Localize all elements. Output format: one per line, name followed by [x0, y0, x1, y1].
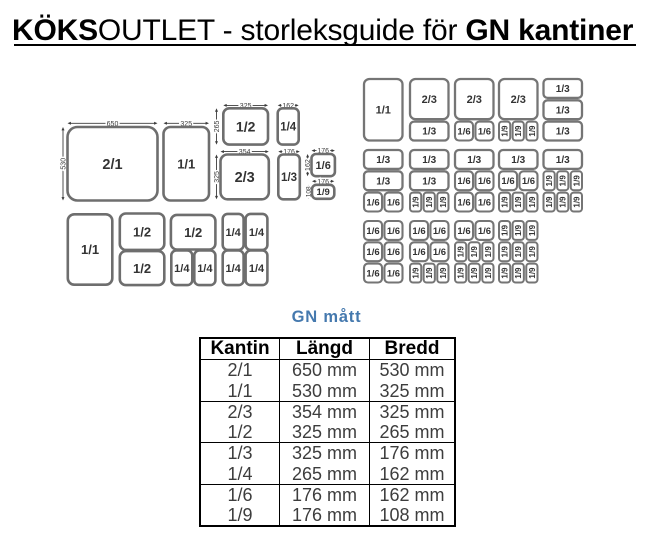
- svg-text:1/6: 1/6: [366, 268, 379, 279]
- svg-text:1/3: 1/3: [376, 176, 390, 187]
- svg-text:1/6: 1/6: [366, 226, 379, 237]
- svg-text:1/3: 1/3: [422, 176, 436, 187]
- svg-text:1/4: 1/4: [226, 227, 242, 239]
- svg-text:1/9: 1/9: [456, 267, 465, 279]
- svg-text:1/9: 1/9: [514, 246, 523, 258]
- svg-text:1/6: 1/6: [433, 226, 446, 237]
- svg-text:1/6: 1/6: [457, 197, 470, 208]
- svg-text:1/9: 1/9: [514, 224, 523, 236]
- svg-text:1/3: 1/3: [281, 172, 297, 184]
- svg-text:1/6: 1/6: [387, 268, 400, 279]
- svg-text:1/4: 1/4: [197, 263, 213, 275]
- svg-text:1/2: 1/2: [133, 224, 151, 239]
- svg-text:1/6: 1/6: [501, 176, 514, 187]
- svg-text:1/9: 1/9: [514, 125, 523, 137]
- svg-text:1/9: 1/9: [572, 175, 581, 187]
- svg-text:2/1: 2/1: [102, 157, 122, 173]
- svg-text:1/3: 1/3: [556, 105, 570, 116]
- svg-text:1/6: 1/6: [387, 247, 400, 258]
- svg-text:1/9: 1/9: [500, 224, 509, 236]
- svg-text:1/9: 1/9: [317, 187, 330, 198]
- svg-text:1/1: 1/1: [376, 105, 391, 117]
- svg-text:1/9: 1/9: [500, 125, 509, 137]
- svg-text:1/9: 1/9: [528, 196, 537, 208]
- svg-text:1/9: 1/9: [411, 196, 420, 208]
- svg-text:2/3: 2/3: [235, 170, 255, 186]
- svg-text:1/4: 1/4: [174, 263, 190, 275]
- svg-text:1/9: 1/9: [439, 196, 448, 208]
- svg-text:1/9: 1/9: [500, 196, 509, 208]
- svg-text:1/6: 1/6: [316, 160, 331, 172]
- svg-text:1/9: 1/9: [528, 125, 537, 137]
- svg-text:1/3: 1/3: [556, 84, 570, 95]
- svg-text:2/3: 2/3: [467, 94, 482, 106]
- svg-text:1/9: 1/9: [559, 196, 568, 208]
- svg-text:1/9: 1/9: [484, 246, 493, 258]
- svg-text:1/9: 1/9: [500, 267, 509, 279]
- svg-text:1/4: 1/4: [226, 263, 242, 275]
- svg-text:1/9: 1/9: [545, 196, 554, 208]
- svg-text:1/6: 1/6: [366, 197, 379, 208]
- svg-text:1/6: 1/6: [387, 226, 400, 237]
- svg-text:1/9: 1/9: [514, 196, 523, 208]
- svg-text:1/9: 1/9: [528, 224, 537, 236]
- svg-text:1/3: 1/3: [376, 155, 390, 166]
- svg-text:1/9: 1/9: [425, 196, 434, 208]
- svg-text:1/1: 1/1: [81, 242, 99, 257]
- svg-text:1/3: 1/3: [467, 155, 481, 166]
- svg-text:1/2: 1/2: [236, 118, 256, 134]
- svg-text:1/9: 1/9: [559, 175, 568, 187]
- svg-text:1/9: 1/9: [439, 267, 448, 279]
- svg-text:1/6: 1/6: [457, 226, 470, 237]
- svg-text:2/3: 2/3: [422, 94, 437, 106]
- svg-text:1/6: 1/6: [412, 226, 425, 237]
- svg-text:1/6: 1/6: [387, 197, 400, 208]
- svg-text:1/3: 1/3: [422, 127, 436, 138]
- svg-text:1/9: 1/9: [470, 246, 479, 258]
- svg-text:1/6: 1/6: [457, 126, 470, 137]
- svg-text:1/9: 1/9: [528, 246, 537, 258]
- svg-text:1/3: 1/3: [422, 155, 436, 166]
- svg-text:1/3: 1/3: [511, 155, 525, 166]
- svg-text:1/9: 1/9: [572, 196, 581, 208]
- svg-text:1/6: 1/6: [478, 226, 491, 237]
- svg-text:2/3: 2/3: [511, 94, 526, 106]
- svg-text:1/4: 1/4: [280, 122, 297, 134]
- svg-text:1/6: 1/6: [366, 247, 379, 258]
- svg-text:1/3: 1/3: [556, 155, 570, 166]
- svg-text:1/3: 1/3: [556, 127, 570, 138]
- svg-text:1/6: 1/6: [478, 126, 491, 137]
- svg-text:1/4: 1/4: [249, 227, 265, 239]
- svg-text:1/6: 1/6: [412, 247, 425, 258]
- svg-text:1/1: 1/1: [177, 156, 195, 171]
- svg-text:1/9: 1/9: [545, 175, 554, 187]
- svg-text:1/9: 1/9: [470, 267, 479, 279]
- svg-text:1/2: 1/2: [184, 225, 202, 240]
- svg-text:1/6: 1/6: [478, 176, 491, 187]
- svg-text:1/9: 1/9: [411, 267, 420, 279]
- svg-text:1/9: 1/9: [425, 267, 434, 279]
- svg-text:1/2: 1/2: [133, 261, 151, 276]
- svg-text:1/9: 1/9: [500, 246, 509, 258]
- svg-text:1/9: 1/9: [484, 267, 493, 279]
- svg-text:1/6: 1/6: [478, 197, 491, 208]
- svg-text:1/9: 1/9: [456, 246, 465, 258]
- svg-text:265: 265: [214, 121, 221, 133]
- svg-text:1/6: 1/6: [457, 176, 470, 187]
- svg-text:1/6: 1/6: [433, 247, 446, 258]
- svg-text:1/4: 1/4: [249, 263, 265, 275]
- svg-text:1/9: 1/9: [528, 267, 537, 279]
- svg-text:1/6: 1/6: [522, 176, 535, 187]
- svg-text:1/9: 1/9: [514, 267, 523, 279]
